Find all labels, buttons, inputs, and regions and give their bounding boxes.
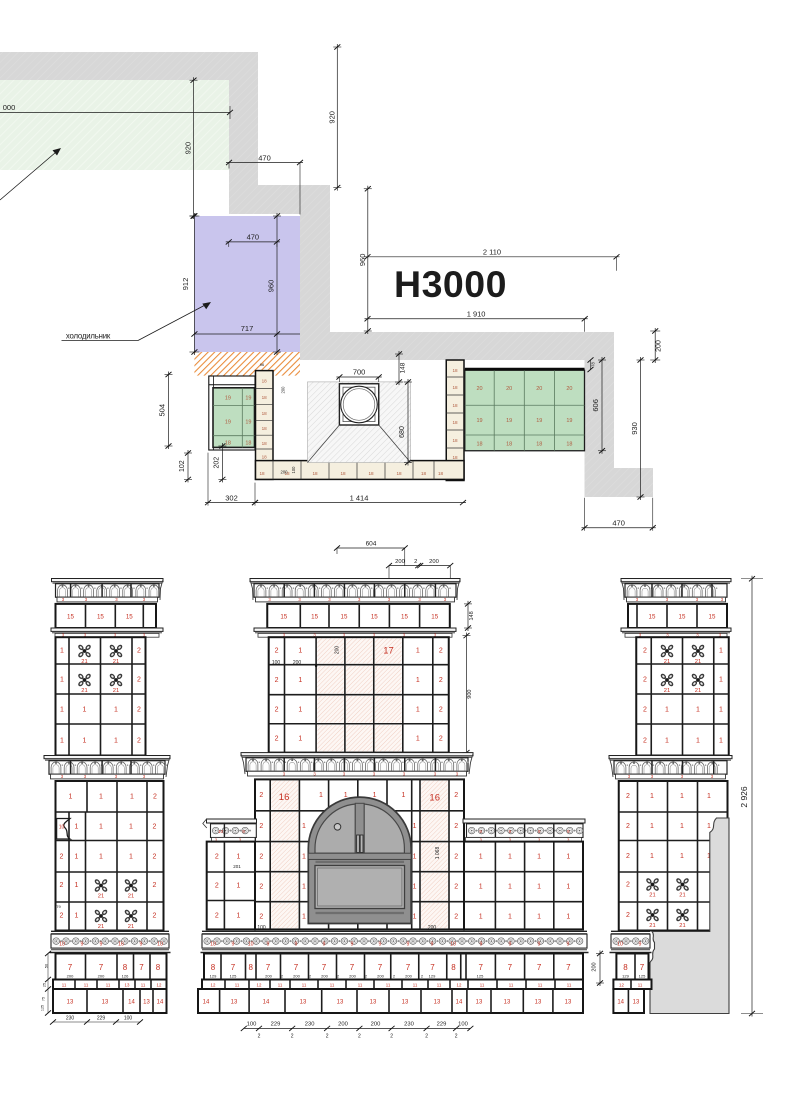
svg-text:1: 1 xyxy=(69,794,73,801)
svg-text:2: 2 xyxy=(60,882,64,889)
svg-text:1: 1 xyxy=(83,738,87,745)
svg-text:920: 920 xyxy=(327,111,336,124)
svg-text:21: 21 xyxy=(679,893,685,899)
svg-text:11: 11 xyxy=(62,983,67,988)
svg-text:1: 1 xyxy=(114,707,118,714)
svg-text:7: 7 xyxy=(478,963,483,972)
svg-text:200: 200 xyxy=(265,974,272,979)
svg-text:1: 1 xyxy=(298,648,302,655)
svg-text:1: 1 xyxy=(508,914,512,921)
svg-text:11: 11 xyxy=(386,983,391,988)
svg-text:1: 1 xyxy=(75,824,79,831)
svg-text:1: 1 xyxy=(99,794,103,801)
svg-text:18: 18 xyxy=(452,438,458,443)
svg-text:1: 1 xyxy=(236,913,240,920)
svg-text:2: 2 xyxy=(137,707,141,714)
svg-text:20: 20 xyxy=(566,386,572,392)
svg-text:2: 2 xyxy=(258,1033,261,1039)
svg-text:100: 100 xyxy=(124,1016,133,1022)
svg-text:2: 2 xyxy=(455,1033,458,1039)
svg-text:1: 1 xyxy=(413,823,417,830)
svg-text:2: 2 xyxy=(137,648,141,655)
svg-text:200: 200 xyxy=(338,1021,348,1027)
svg-text:1: 1 xyxy=(60,738,64,745)
svg-text:9: 9 xyxy=(323,942,326,948)
svg-text:21: 21 xyxy=(128,894,134,900)
svg-text:200: 200 xyxy=(293,660,302,666)
svg-text:100: 100 xyxy=(458,1021,468,1027)
svg-text:15: 15 xyxy=(401,614,408,621)
svg-text:10: 10 xyxy=(450,942,456,948)
svg-text:200: 200 xyxy=(67,974,74,979)
svg-text:19: 19 xyxy=(245,396,251,402)
svg-text:2: 2 xyxy=(291,1033,294,1039)
svg-text:2: 2 xyxy=(454,792,458,799)
svg-text:21: 21 xyxy=(81,688,87,694)
svg-text:13: 13 xyxy=(434,1000,441,1006)
svg-text:78: 78 xyxy=(591,362,596,367)
svg-text:1: 1 xyxy=(680,793,684,800)
svg-text:18: 18 xyxy=(262,395,268,400)
svg-text:1: 1 xyxy=(75,854,79,861)
svg-text:11: 11 xyxy=(141,983,146,988)
svg-text:9: 9 xyxy=(140,942,143,948)
svg-text:10: 10 xyxy=(157,942,163,948)
svg-text:2: 2 xyxy=(454,914,458,921)
svg-text:18: 18 xyxy=(262,426,268,431)
svg-text:19: 19 xyxy=(225,420,231,426)
svg-text:1: 1 xyxy=(99,824,103,831)
svg-text:1: 1 xyxy=(298,677,302,684)
svg-text:7: 7 xyxy=(294,963,299,972)
svg-text:912: 912 xyxy=(181,278,190,291)
svg-text:9: 9 xyxy=(100,942,103,948)
svg-text:20: 20 xyxy=(536,386,542,392)
svg-text:230: 230 xyxy=(305,1021,315,1027)
svg-text:8: 8 xyxy=(451,963,456,972)
svg-text:15: 15 xyxy=(709,614,716,621)
svg-text:19: 19 xyxy=(506,418,512,424)
svg-text:2: 2 xyxy=(259,914,263,921)
svg-text:1: 1 xyxy=(650,823,654,830)
svg-text:2: 2 xyxy=(259,854,263,861)
svg-text:18: 18 xyxy=(452,368,458,373)
svg-text:1: 1 xyxy=(680,853,684,860)
svg-text:126: 126 xyxy=(122,974,129,979)
svg-text:18: 18 xyxy=(262,455,268,460)
svg-text:680: 680 xyxy=(399,426,406,438)
svg-text:18: 18 xyxy=(438,471,444,476)
svg-text:1: 1 xyxy=(114,738,118,745)
svg-text:2: 2 xyxy=(454,823,458,830)
svg-text:9: 9 xyxy=(431,942,434,948)
svg-text:13: 13 xyxy=(67,1000,74,1006)
svg-text:148: 148 xyxy=(400,362,407,373)
svg-text:960: 960 xyxy=(267,280,276,293)
svg-text:2: 2 xyxy=(414,559,417,565)
svg-text:11: 11 xyxy=(480,983,485,988)
svg-text:1: 1 xyxy=(298,707,302,714)
svg-text:18: 18 xyxy=(262,379,268,384)
svg-text:2: 2 xyxy=(259,884,263,891)
svg-text:1: 1 xyxy=(302,914,306,921)
svg-text:9: 9 xyxy=(295,942,298,948)
svg-text:2: 2 xyxy=(439,736,443,743)
svg-text:2: 2 xyxy=(137,738,141,745)
svg-text:2: 2 xyxy=(60,854,64,861)
svg-text:2: 2 xyxy=(643,738,647,745)
svg-text:13: 13 xyxy=(535,1000,542,1006)
svg-text:148: 148 xyxy=(469,611,475,620)
svg-text:1: 1 xyxy=(719,648,723,655)
svg-text:7: 7 xyxy=(139,963,144,972)
svg-text:1: 1 xyxy=(298,736,302,743)
svg-text:229: 229 xyxy=(271,1021,281,1027)
svg-text:1: 1 xyxy=(707,793,711,800)
svg-text:2: 2 xyxy=(425,1033,428,1039)
svg-text:11: 11 xyxy=(509,983,514,988)
svg-text:14: 14 xyxy=(263,1000,270,1006)
svg-text:10: 10 xyxy=(248,942,254,948)
svg-text:9: 9 xyxy=(567,942,570,948)
svg-text:13: 13 xyxy=(337,1000,344,1006)
svg-text:9: 9 xyxy=(480,942,483,948)
svg-text:18: 18 xyxy=(225,441,231,447)
svg-text:2: 2 xyxy=(153,882,157,889)
svg-text:21: 21 xyxy=(98,894,104,900)
svg-text:125: 125 xyxy=(41,1005,45,1011)
svg-text:21: 21 xyxy=(679,923,685,929)
svg-text:202: 202 xyxy=(213,457,220,469)
svg-text:1 068: 1 068 xyxy=(435,847,441,860)
svg-text:129: 129 xyxy=(622,974,629,979)
svg-text:102: 102 xyxy=(179,460,186,472)
svg-text:7: 7 xyxy=(640,963,645,972)
svg-text:470: 470 xyxy=(612,519,625,528)
svg-text:302: 302 xyxy=(225,493,238,502)
svg-text:1: 1 xyxy=(479,884,483,891)
svg-text:2: 2 xyxy=(439,707,443,714)
svg-text:100: 100 xyxy=(272,660,281,666)
svg-text:2: 2 xyxy=(275,707,279,714)
svg-text:10: 10 xyxy=(617,942,623,948)
svg-text:1: 1 xyxy=(537,884,541,891)
svg-text:2: 2 xyxy=(626,793,630,800)
svg-text:13: 13 xyxy=(565,1000,572,1006)
svg-text:12: 12 xyxy=(211,983,216,988)
svg-text:18: 18 xyxy=(259,471,265,476)
svg-text:1 414: 1 414 xyxy=(350,493,369,502)
svg-text:15: 15 xyxy=(280,614,287,621)
svg-text:19: 19 xyxy=(476,418,482,424)
svg-text:13: 13 xyxy=(125,983,130,988)
svg-text:13: 13 xyxy=(300,1000,307,1006)
svg-text:21: 21 xyxy=(113,688,119,694)
svg-text:10: 10 xyxy=(59,942,65,948)
svg-text:930: 930 xyxy=(630,422,639,435)
svg-text:2: 2 xyxy=(439,677,443,684)
svg-text:8: 8 xyxy=(211,963,216,972)
svg-text:18: 18 xyxy=(396,471,402,476)
svg-text:2: 2 xyxy=(626,853,630,860)
svg-text:1: 1 xyxy=(508,854,512,861)
svg-text:2: 2 xyxy=(439,648,443,655)
svg-text:7: 7 xyxy=(378,963,383,972)
svg-text:200: 200 xyxy=(281,386,286,394)
svg-text:2: 2 xyxy=(643,707,647,714)
svg-text:7: 7 xyxy=(508,963,513,972)
svg-text:200: 200 xyxy=(656,340,663,352)
svg-text:200: 200 xyxy=(293,974,300,979)
svg-text:1: 1 xyxy=(416,707,420,714)
svg-text:1: 1 xyxy=(416,736,420,743)
svg-text:7: 7 xyxy=(406,963,411,972)
svg-text:9: 9 xyxy=(509,942,512,948)
svg-text:75: 75 xyxy=(42,997,46,1001)
svg-text:200: 200 xyxy=(349,974,356,979)
svg-text:14: 14 xyxy=(203,1000,210,1006)
svg-text:17: 17 xyxy=(383,646,394,657)
svg-text:21: 21 xyxy=(695,688,701,694)
svg-text:125: 125 xyxy=(639,974,646,979)
svg-text:1: 1 xyxy=(650,853,654,860)
svg-text:11: 11 xyxy=(235,983,240,988)
svg-text:15: 15 xyxy=(679,614,686,621)
svg-text:1: 1 xyxy=(566,854,570,861)
svg-text:000: 000 xyxy=(3,103,16,112)
svg-text:21: 21 xyxy=(81,659,87,665)
svg-text:200: 200 xyxy=(592,962,598,971)
svg-text:13: 13 xyxy=(231,1000,238,1006)
svg-text:129: 129 xyxy=(210,974,217,979)
svg-text:604: 604 xyxy=(366,541,377,548)
svg-text:1: 1 xyxy=(719,707,723,714)
svg-text:100: 100 xyxy=(291,466,296,474)
svg-text:11: 11 xyxy=(330,983,335,988)
svg-text:200: 200 xyxy=(405,974,412,979)
svg-text:19: 19 xyxy=(566,418,572,424)
svg-text:100: 100 xyxy=(257,925,266,931)
svg-text:19: 19 xyxy=(245,420,251,426)
svg-text:18: 18 xyxy=(536,442,542,448)
svg-text:9: 9 xyxy=(232,942,235,948)
svg-text:200: 200 xyxy=(281,470,289,475)
svg-text:9: 9 xyxy=(639,942,642,948)
svg-text:2: 2 xyxy=(390,1033,393,1039)
svg-text:13: 13 xyxy=(143,1000,150,1006)
svg-text:1: 1 xyxy=(416,677,420,684)
svg-text:1: 1 xyxy=(236,854,240,861)
svg-text:13: 13 xyxy=(402,1000,409,1006)
svg-text:1: 1 xyxy=(650,793,654,800)
svg-text:1: 1 xyxy=(696,707,700,714)
svg-text:2: 2 xyxy=(215,913,219,920)
svg-text:2: 2 xyxy=(153,913,157,920)
svg-text:18: 18 xyxy=(421,471,427,476)
svg-text:100: 100 xyxy=(247,1021,257,1027)
svg-text:9: 9 xyxy=(351,942,354,948)
svg-text:7: 7 xyxy=(566,963,571,972)
svg-text:9: 9 xyxy=(567,829,570,834)
svg-text:201: 201 xyxy=(233,864,241,869)
svg-text:19: 19 xyxy=(536,418,542,424)
svg-text:1: 1 xyxy=(416,648,420,655)
svg-text:2: 2 xyxy=(275,648,279,655)
svg-text:1: 1 xyxy=(413,914,417,921)
svg-text:15: 15 xyxy=(67,614,74,621)
svg-text:11: 11 xyxy=(538,983,543,988)
svg-text:900: 900 xyxy=(467,690,473,699)
svg-text:14: 14 xyxy=(157,1000,164,1006)
svg-text:18: 18 xyxy=(245,441,251,447)
svg-text:10: 10 xyxy=(210,942,216,948)
svg-text:14: 14 xyxy=(128,1000,135,1006)
svg-text:1: 1 xyxy=(566,884,570,891)
svg-text:19: 19 xyxy=(225,396,231,402)
svg-text:11: 11 xyxy=(84,983,89,988)
svg-text:11: 11 xyxy=(358,983,363,988)
svg-text:14: 14 xyxy=(456,1000,463,1006)
svg-text:H3000: H3000 xyxy=(394,263,507,305)
svg-text:1: 1 xyxy=(75,913,79,920)
svg-text:1: 1 xyxy=(129,824,133,831)
svg-text:13: 13 xyxy=(476,1000,483,1006)
svg-text:920: 920 xyxy=(184,142,193,155)
svg-text:2: 2 xyxy=(259,823,263,830)
svg-text:200: 200 xyxy=(429,559,439,565)
svg-text:18: 18 xyxy=(452,455,458,460)
svg-text:12: 12 xyxy=(457,983,462,988)
svg-text:129: 129 xyxy=(429,974,436,979)
svg-text:504: 504 xyxy=(158,404,167,417)
svg-text:1: 1 xyxy=(719,677,723,684)
svg-text:200: 200 xyxy=(428,925,437,931)
svg-text:1: 1 xyxy=(302,884,306,891)
svg-text:18: 18 xyxy=(452,403,458,408)
svg-text:200: 200 xyxy=(98,974,105,979)
svg-text:15: 15 xyxy=(126,614,133,621)
svg-text:1: 1 xyxy=(665,738,669,745)
svg-text:18: 18 xyxy=(368,471,374,476)
svg-text:10: 10 xyxy=(59,825,65,831)
svg-text:2: 2 xyxy=(215,883,219,890)
svg-text:2: 2 xyxy=(275,736,279,743)
svg-text:7: 7 xyxy=(68,963,73,972)
svg-text:18: 18 xyxy=(312,471,318,476)
svg-text:2: 2 xyxy=(275,677,279,684)
svg-text:2: 2 xyxy=(454,854,458,861)
svg-text:7: 7 xyxy=(430,963,435,972)
svg-text:18: 18 xyxy=(262,411,268,416)
svg-text:1: 1 xyxy=(401,792,405,799)
svg-text:13: 13 xyxy=(633,1000,640,1006)
svg-text:15: 15 xyxy=(649,614,656,621)
svg-text:2: 2 xyxy=(626,823,630,830)
svg-text:11: 11 xyxy=(567,983,572,988)
svg-text:15: 15 xyxy=(431,614,438,621)
svg-text:1: 1 xyxy=(479,854,483,861)
svg-text:1: 1 xyxy=(707,823,711,830)
svg-text:470: 470 xyxy=(247,233,260,242)
svg-text:8: 8 xyxy=(123,963,128,972)
svg-text:9: 9 xyxy=(81,942,84,948)
svg-text:16: 16 xyxy=(118,942,124,948)
svg-text:7: 7 xyxy=(99,963,104,972)
svg-text:7: 7 xyxy=(322,963,327,972)
svg-text:2: 2 xyxy=(137,677,141,684)
svg-text:1: 1 xyxy=(302,854,306,861)
svg-text:2: 2 xyxy=(626,882,630,889)
svg-text:125: 125 xyxy=(477,974,484,979)
svg-text:2: 2 xyxy=(643,677,647,684)
svg-text:1: 1 xyxy=(319,792,323,799)
svg-text:9: 9 xyxy=(509,829,512,834)
svg-text:9: 9 xyxy=(538,942,541,948)
svg-text:2: 2 xyxy=(643,648,647,655)
svg-text:200: 200 xyxy=(335,646,341,655)
svg-text:8: 8 xyxy=(623,963,628,972)
svg-text:21: 21 xyxy=(664,659,670,665)
svg-text:1: 1 xyxy=(566,914,570,921)
svg-text:7: 7 xyxy=(231,963,236,972)
svg-text:11: 11 xyxy=(106,983,111,988)
svg-text:1: 1 xyxy=(508,884,512,891)
svg-text:1 910: 1 910 xyxy=(467,310,486,319)
svg-text:9: 9 xyxy=(242,829,245,834)
svg-text:11: 11 xyxy=(638,983,643,988)
svg-text:15: 15 xyxy=(371,614,378,621)
svg-text:холодильник: холодильник xyxy=(66,332,111,341)
svg-text:18: 18 xyxy=(566,442,572,448)
svg-text:2: 2 xyxy=(153,854,157,861)
svg-text:15: 15 xyxy=(97,614,104,621)
svg-text:12: 12 xyxy=(257,983,262,988)
svg-text:125: 125 xyxy=(230,974,237,979)
svg-text:1: 1 xyxy=(236,883,240,890)
svg-text:1: 1 xyxy=(413,884,417,891)
svg-text:230: 230 xyxy=(66,1016,75,1022)
svg-text:12: 12 xyxy=(157,983,162,988)
svg-text:16: 16 xyxy=(429,793,440,804)
svg-text:7: 7 xyxy=(350,963,355,972)
svg-text:13: 13 xyxy=(102,1000,109,1006)
svg-text:2 110: 2 110 xyxy=(483,248,501,257)
svg-text:470: 470 xyxy=(258,153,271,162)
svg-text:11: 11 xyxy=(278,983,283,988)
svg-text:16: 16 xyxy=(279,792,290,803)
svg-text:1: 1 xyxy=(60,648,64,655)
svg-text:1: 1 xyxy=(129,854,133,861)
svg-text:606: 606 xyxy=(591,399,600,412)
svg-text:1: 1 xyxy=(479,914,483,921)
svg-text:14: 14 xyxy=(617,1000,624,1006)
svg-text:9: 9 xyxy=(479,829,482,834)
svg-text:11: 11 xyxy=(437,983,442,988)
svg-text:2 926: 2 926 xyxy=(739,786,749,808)
svg-text:1: 1 xyxy=(75,882,79,889)
svg-text:230: 230 xyxy=(404,1021,414,1027)
svg-text:2: 2 xyxy=(60,913,64,920)
svg-text:21: 21 xyxy=(128,924,134,930)
svg-text:1: 1 xyxy=(130,794,134,801)
svg-text:8: 8 xyxy=(156,963,161,972)
svg-text:200: 200 xyxy=(321,974,328,979)
svg-text:21: 21 xyxy=(113,659,119,665)
svg-text:18: 18 xyxy=(506,442,512,448)
svg-text:18: 18 xyxy=(452,385,458,390)
svg-text:2: 2 xyxy=(259,792,263,799)
svg-text:21: 21 xyxy=(649,923,655,929)
